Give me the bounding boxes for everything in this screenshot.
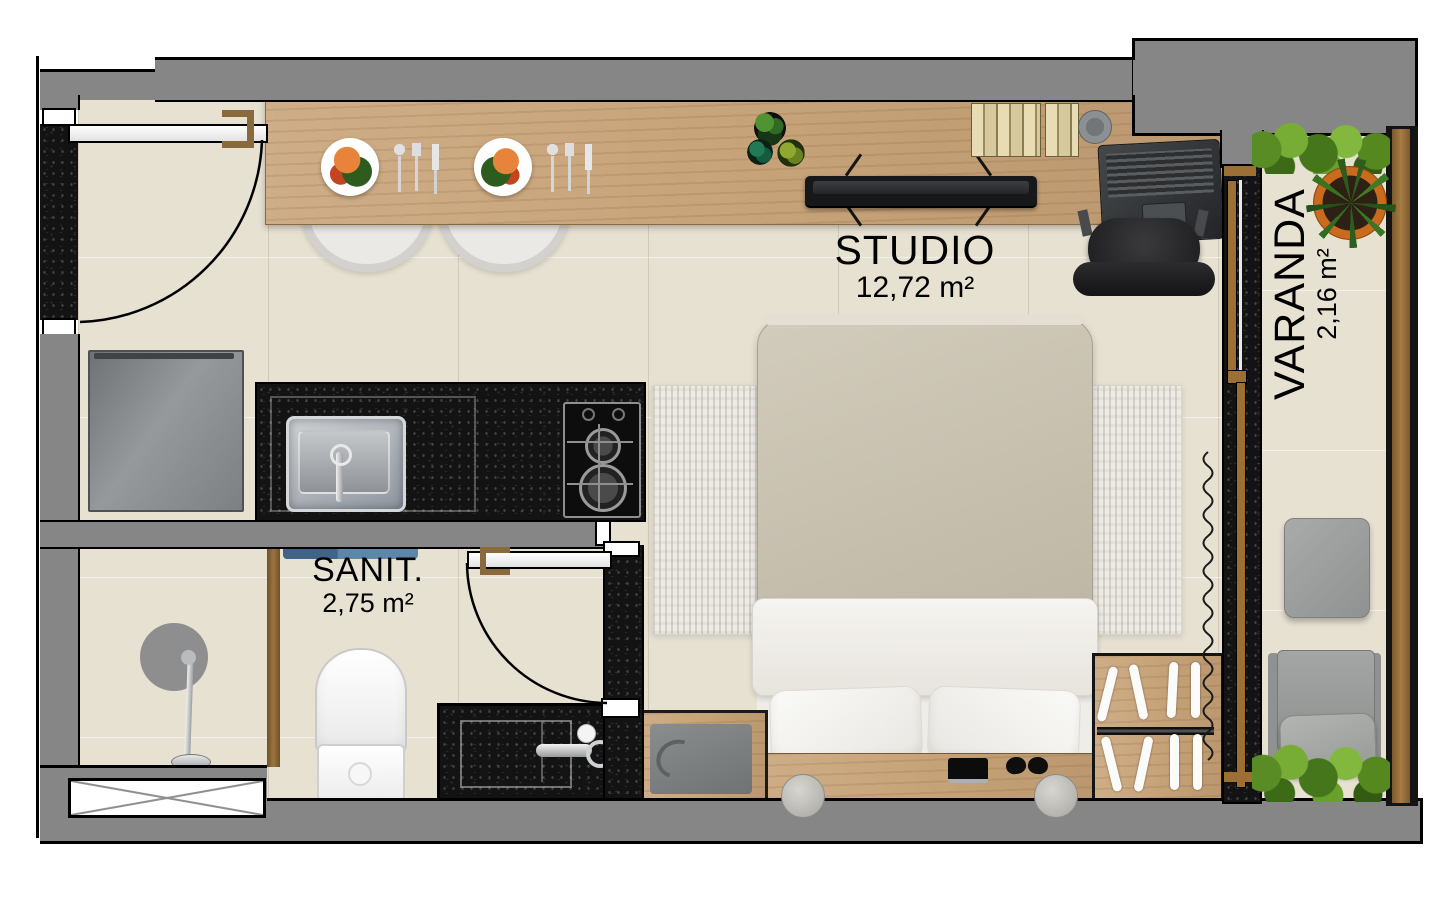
- plan-overlay: [0, 0, 1443, 900]
- floor-plan-canvas: STUDIO 12,72 m² SANIT. 2,75 m² VARANDA 2…: [0, 0, 1443, 900]
- sanit-room-name: SANIT.: [283, 552, 453, 589]
- studio-room-name: STUDIO: [775, 228, 1055, 272]
- sanit-room-label: SANIT. 2,75 m²: [283, 552, 453, 618]
- varanda-room-name: VARANDA: [1267, 164, 1313, 424]
- varanda-room-label: VARANDA 2,16 m²: [1267, 164, 1379, 424]
- curtain-icon: [1204, 452, 1213, 760]
- studio-room-label: STUDIO 12,72 m²: [775, 228, 1055, 305]
- sanit-room-area: 2,75 m²: [283, 589, 453, 618]
- studio-room-area: 12,72 m²: [775, 272, 1055, 304]
- varanda-room-area: 2,16 m²: [1313, 164, 1342, 424]
- entrance-door-arc: [80, 140, 262, 322]
- bathroom-door-arc: [467, 563, 607, 703]
